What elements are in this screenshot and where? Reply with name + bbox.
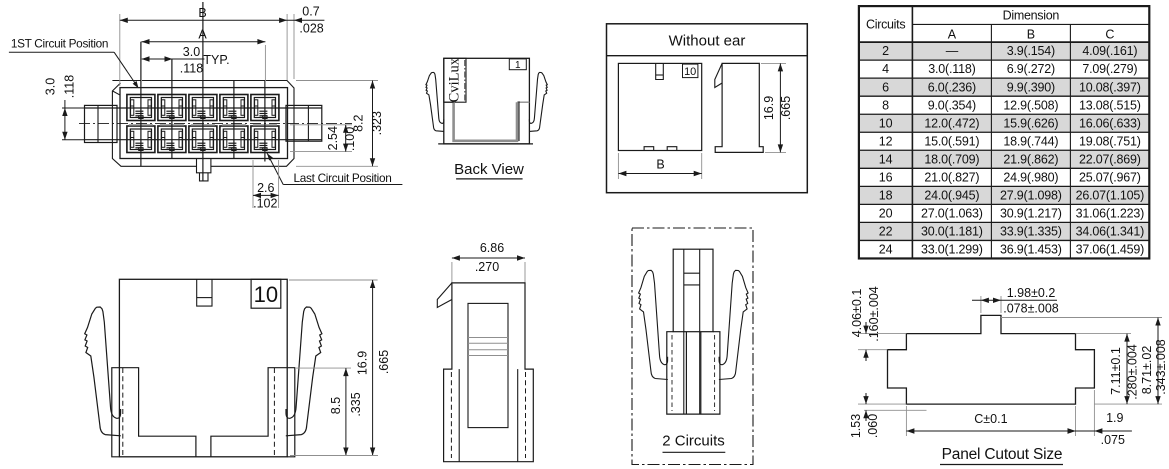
svg-text:Back View: Back View [454,161,524,178]
svg-text:.343±.008: .343±.008 [1154,339,1168,395]
svg-text:0.7: 0.7 [302,5,319,19]
svg-text:6.86: 6.86 [480,241,504,255]
svg-text:21.9(.862): 21.9(.862) [1003,152,1058,166]
svg-text:Panel Cutout Size: Panel Cutout Size [942,446,1063,463]
svg-text:.665: .665 [377,350,391,374]
svg-text:Without ear: Without ear [669,33,746,50]
svg-text:15.0(.591): 15.0(.591) [924,134,979,148]
svg-text:37.06(1.459): 37.06(1.459) [1076,243,1145,257]
svg-text:6: 6 [882,80,889,94]
svg-text:9.9(.390): 9.9(.390) [1007,80,1055,94]
svg-text:18.9(.744): 18.9(.744) [1003,134,1058,148]
svg-text:30.9(1.217): 30.9(1.217) [1000,206,1062,220]
svg-text:B: B [198,6,206,20]
svg-text:18.0(.709): 18.0(.709) [924,152,979,166]
svg-text:.102: .102 [253,197,277,211]
svg-text:.323: .323 [370,111,384,135]
svg-text:8.5: 8.5 [329,397,343,414]
svg-text:8: 8 [882,98,889,112]
svg-text:1: 1 [515,60,521,71]
svg-text:4.09(.161): 4.09(.161) [1082,44,1137,58]
svg-text:24.0(.945): 24.0(.945) [924,188,979,202]
svg-text:2.6: 2.6 [257,181,274,195]
svg-text:6.9(.272): 6.9(.272) [1007,62,1055,76]
svg-text:TYP.: TYP. [203,53,229,67]
svg-text:1ST Circuit Position: 1ST Circuit Position [11,37,108,51]
svg-text:A: A [198,28,207,42]
svg-text:19.08(.751): 19.08(.751) [1079,134,1141,148]
svg-text:16.06(.633): 16.06(.633) [1079,116,1141,130]
svg-text:3.0: 3.0 [183,45,200,59]
svg-text:1.53: 1.53 [849,414,863,438]
svg-text:C±0.1: C±0.1 [974,412,1007,426]
svg-text:27.0(1.063): 27.0(1.063) [921,206,983,220]
svg-text:7.09(.279): 7.09(.279) [1082,62,1137,76]
svg-text:22.07(.869): 22.07(.869) [1079,152,1141,166]
svg-text:B: B [656,158,664,172]
svg-text:22: 22 [879,225,893,239]
svg-text:18: 18 [879,188,893,202]
svg-text:1.9: 1.9 [1106,411,1123,425]
svg-text:30.0(1.181): 30.0(1.181) [921,225,983,239]
svg-text:13.08(.515): 13.08(.515) [1079,98,1141,112]
svg-text:.078±.008: .078±.008 [1003,302,1059,316]
svg-text:24.9(.980): 24.9(.980) [1003,170,1058,184]
svg-text:15.9(.626): 15.9(.626) [1003,116,1058,130]
svg-text:A: A [948,27,957,41]
svg-text:.028: .028 [299,22,323,36]
svg-text:21.0(.827): 21.0(.827) [924,170,979,184]
svg-text:33.9(1.335): 33.9(1.335) [1000,225,1062,239]
svg-text:Circuits: Circuits [866,18,905,32]
svg-text:2 Circuits: 2 Circuits [662,433,725,450]
svg-text:16: 16 [879,170,893,184]
svg-text:34.06(1.341): 34.06(1.341) [1076,225,1145,239]
svg-text:4: 4 [882,62,889,76]
svg-text:—: — [946,44,959,58]
svg-text:6.0(.236): 6.0(.236) [928,80,976,94]
svg-text:B: B [1027,27,1035,41]
svg-text:31.06(1.223): 31.06(1.223) [1076,206,1145,220]
svg-text:.665: .665 [779,96,793,120]
svg-text:3.0: 3.0 [44,78,58,95]
svg-text:C: C [1105,27,1114,41]
svg-text:16.9: 16.9 [762,96,776,120]
svg-text:2: 2 [882,44,889,58]
svg-text:10: 10 [879,116,893,130]
svg-text:7.11±0.1: 7.11±0.1 [1109,347,1123,395]
svg-text:2.54: 2.54 [326,126,340,150]
svg-text:10: 10 [684,66,696,78]
svg-text:3.0(.118): 3.0(.118) [928,62,975,76]
svg-text:.280±.004: .280±.004 [1126,344,1140,400]
svg-text:10: 10 [254,282,278,307]
svg-text:.270: .270 [475,260,499,274]
svg-text:25.07(.967): 25.07(.967) [1079,170,1141,184]
svg-text:33.0(1.299): 33.0(1.299) [921,243,983,257]
svg-text:4.06±0.1: 4.06±0.1 [850,289,864,338]
svg-text:Dimension: Dimension [1003,9,1060,23]
svg-text:3.9(.154): 3.9(.154) [1007,44,1055,58]
svg-text:14: 14 [879,152,893,166]
svg-text:.335: .335 [349,392,363,416]
svg-text:8.2: 8.2 [352,114,366,131]
svg-text:12: 12 [879,134,893,148]
svg-text:12.0(.472): 12.0(.472) [924,116,979,130]
svg-text:12.9(.508): 12.9(.508) [1003,98,1058,112]
svg-text:.118: .118 [180,62,203,76]
svg-text:.118: .118 [63,75,77,98]
svg-text:1.98±0.2: 1.98±0.2 [1007,286,1056,300]
svg-text:Last Circuit Position: Last Circuit Position [294,171,392,185]
svg-text:16.9: 16.9 [356,351,370,375]
svg-text:24: 24 [879,243,893,257]
svg-text:26.07(1.105): 26.07(1.105) [1076,188,1145,202]
svg-text:10.08(.397): 10.08(.397) [1079,80,1141,94]
svg-text:.075: .075 [1101,433,1125,447]
svg-text:8.71±.02: 8.71±.02 [1140,346,1154,395]
svg-text:36.9(1.453): 36.9(1.453) [1000,243,1062,257]
svg-text:20: 20 [879,206,893,220]
svg-text:CviLux: CviLux [447,57,463,102]
svg-text:9.0(.354): 9.0(.354) [928,98,976,112]
svg-text:27.9(1.098): 27.9(1.098) [1000,188,1062,202]
